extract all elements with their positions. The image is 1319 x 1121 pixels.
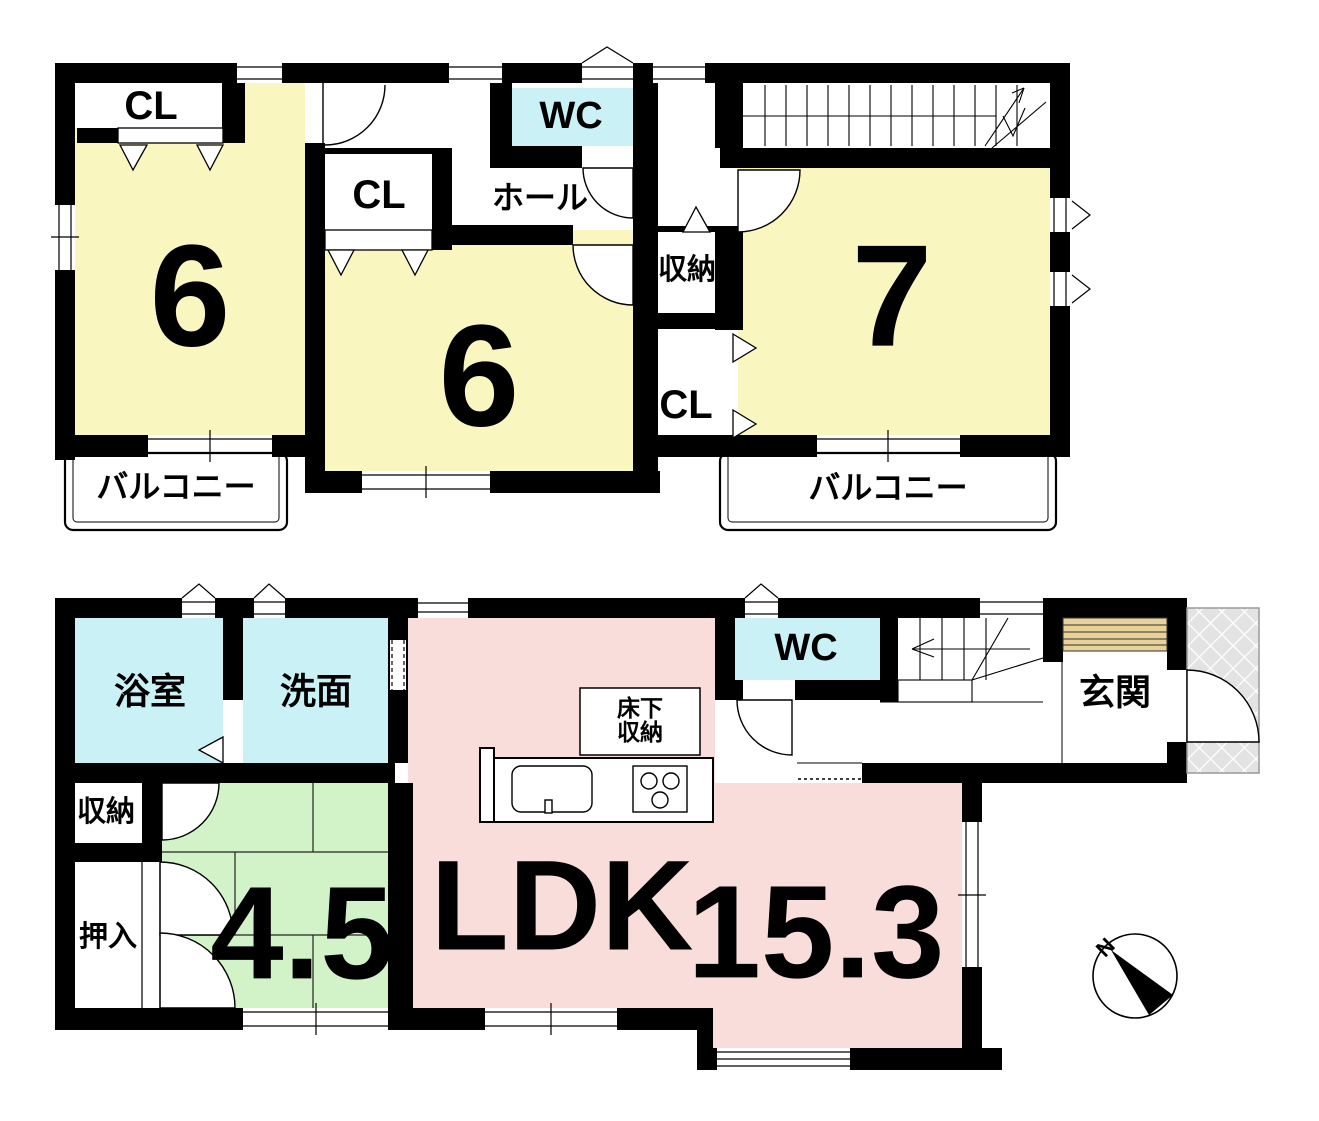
label-ldk: LDK [430,839,693,972]
label-bedroom-left-size: 6 [150,221,231,372]
label-closet-mid: CL [352,175,405,217]
stove-icon [633,766,687,812]
underfloor-line2: 収納 [617,719,663,745]
label-toilet-1f: WC [774,629,837,669]
label-storage-2f: 収納 [658,255,716,285]
label-balcony-right: バルコニー [808,471,967,504]
label-ldk-size: 15.3 [688,863,945,1000]
label-hall: ホール [492,181,588,214]
label-bedroom-right-size: 7 [852,221,933,372]
label-underfloor-storage: 床下 収納 [617,697,663,745]
label-entrance: 玄関 [1079,673,1151,710]
stairs-2f [743,85,1046,148]
underfloor-line1: 床下 [617,695,663,721]
label-closet-right: CL [659,385,712,427]
label-storage-1f: 収納 [77,797,135,827]
label-futon-closet: 押入 [79,922,137,952]
floor-plan: CL 6 CL ホール WC 6 収納 CL 7 バルコニー バルコニー 浴室 … [0,0,1319,1121]
label-washroom: 洗面 [280,672,352,709]
label-tatami-size: 4.5 [210,864,394,1001]
label-closet-top-left: CL [124,86,177,128]
label-bedroom-mid-size: 6 [439,301,520,452]
kitchen-counter [480,748,713,822]
label-toilet-2f: WC [539,97,602,137]
label-bathroom: 浴室 [114,672,186,709]
stairs-1f [880,618,1043,702]
label-balcony-left: バルコニー [96,470,255,503]
kitchen-tap-icon [545,800,552,813]
